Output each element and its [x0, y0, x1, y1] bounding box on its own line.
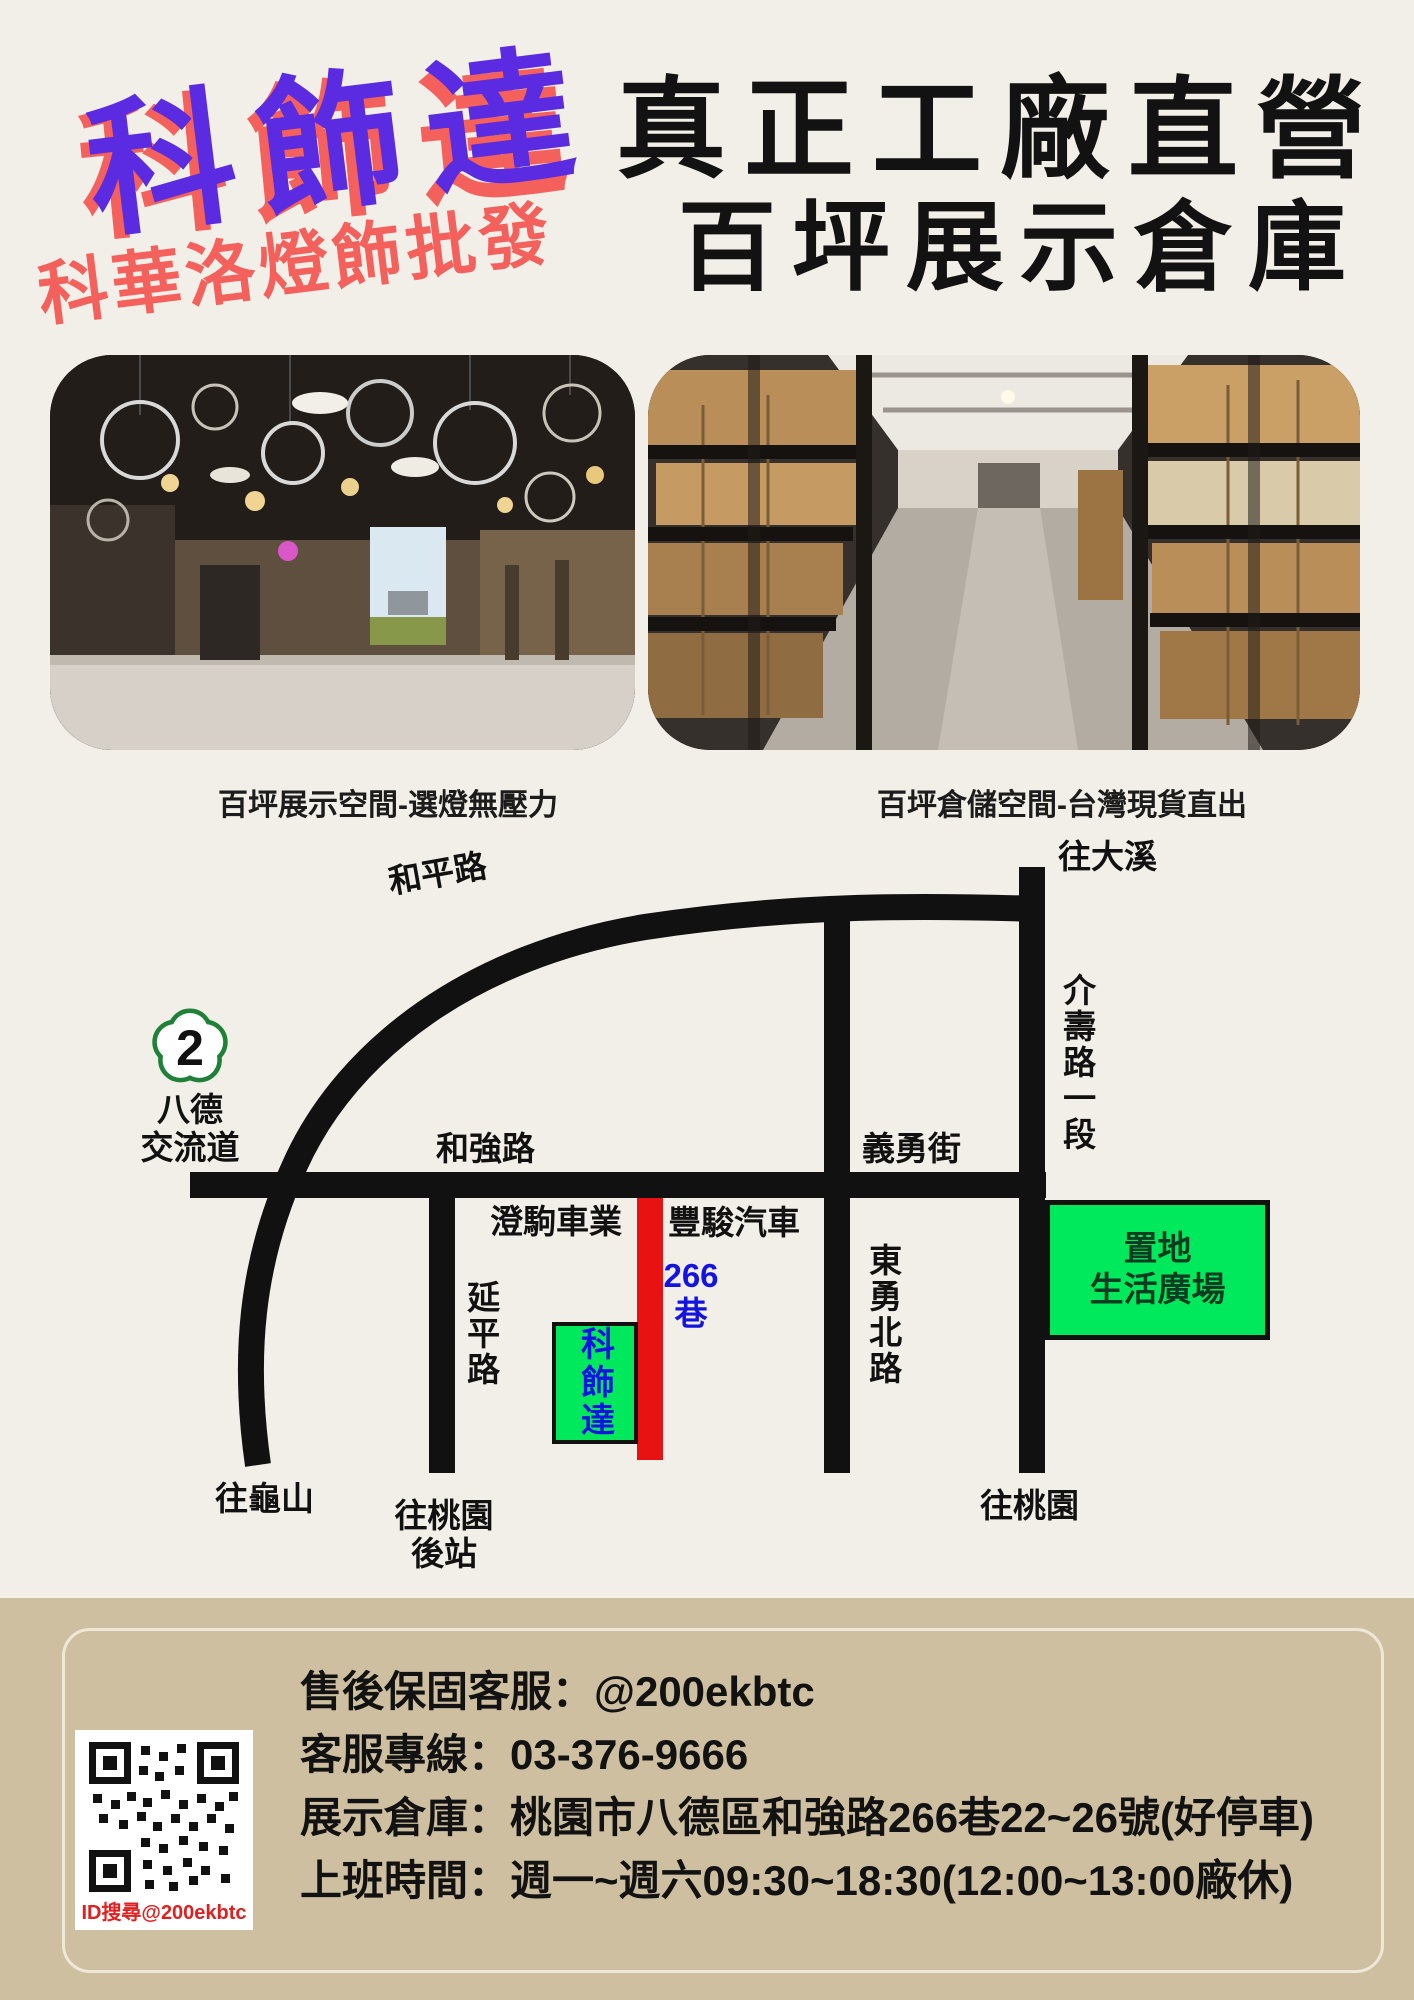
direction-label-taoyuan: 往桃園 — [980, 1487, 1079, 1525]
direction-label-taoyuan-rear: 往桃園 後站 — [374, 1497, 514, 1572]
qr-code-card: ID搜尋@200ekbtc — [75, 1730, 253, 1930]
store-landmark-box: 科飾達 — [552, 1322, 638, 1444]
headline-line2: 百坪展示倉庫 — [650, 168, 1390, 310]
road-label-dongyongbei: 東勇北路 — [864, 1243, 902, 1387]
interchange-badge-label: 八德 交流道 — [125, 1091, 255, 1166]
plaza-landmark-label: 置地 生活廣場 — [1090, 1229, 1226, 1311]
contact-info: 售後保固客服：@200ekbtc 客服專線：03-376-9666 展示倉庫：桃… — [300, 1660, 1314, 1912]
road-label-lane266: 266 巷 — [654, 1257, 728, 1332]
contact-line-phone: 客服專線：03-376-9666 — [300, 1723, 1314, 1786]
plaza-landmark-box: 置地 生活廣場 — [1045, 1200, 1270, 1340]
footer: ID搜尋@200ekbtc 售後保固客服：@200ekbtc 客服專線：03-3… — [0, 1598, 1414, 2000]
direction-label-daxi: 往大溪 — [1058, 838, 1157, 876]
direction-label-guishan: 往龜山 — [215, 1480, 314, 1518]
qr-search-label: ID搜尋@200ekbtc — [81, 1896, 246, 1925]
warehouse-photo-art — [648, 355, 1360, 750]
road-label-yiyong: 義勇街 — [862, 1130, 961, 1168]
road-label-heqiang: 和強路 — [436, 1130, 535, 1168]
landmark-label-chengju: 澄駒車業 — [490, 1203, 622, 1241]
contact-line-service: 售後保固客服：@200ekbtc — [300, 1660, 1314, 1723]
warehouse-photo — [648, 355, 1360, 750]
flyer-page: { "colors": { "background": "#F2EFE8", "… — [0, 0, 1414, 2000]
store-landmark-label: 科飾達 — [571, 1326, 620, 1440]
showroom-photo — [50, 355, 635, 750]
qr-code-icon — [89, 1742, 239, 1892]
location-map: 2 和平路 往大溪 介壽路一段 八德 交流道 和強路 義勇街 澄駒車業 豐駿汽車… — [0, 815, 1414, 1595]
road-label-yanping: 延平路 — [462, 1280, 500, 1388]
header: 科飾達 科飾達 科華洛燈飾批發 真正工廠直營 百坪展示倉庫 — [0, 0, 1414, 350]
contact-line-address: 展示倉庫：桃園市八德區和強路266巷22~26號(好停車) — [300, 1786, 1314, 1849]
landmark-label-fengjun: 豐駿汽車 — [668, 1204, 800, 1242]
road-label-jieshou: 介壽路一段 — [1058, 973, 1096, 1153]
contact-line-hours: 上班時間：週一~週六09:30~18:30(12:00~13:00廠休) — [300, 1849, 1314, 1912]
highway-2-number: 2 — [176, 1020, 204, 1076]
highway-2-shield-icon: 2 — [155, 1011, 225, 1080]
showroom-photo-art — [50, 355, 635, 750]
